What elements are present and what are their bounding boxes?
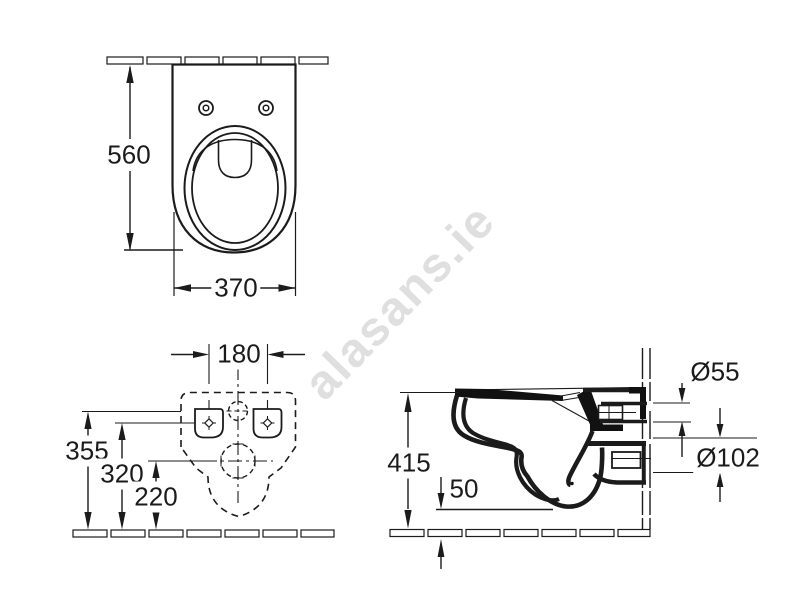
dim-label-outlet-diameter: Ø102 xyxy=(693,443,763,474)
rim-top xyxy=(455,389,563,402)
dim-label-outlet-220: 220 xyxy=(131,482,180,513)
technical-drawing-page: alasans.ie xyxy=(0,0,800,600)
dimension-inlet-diameter-lines xyxy=(653,383,691,457)
trap-curve xyxy=(568,431,592,485)
outlet-opening xyxy=(612,452,641,468)
wall-hatch-right xyxy=(643,348,651,529)
drawing-linework xyxy=(0,0,800,600)
seat-outer-ring xyxy=(185,126,286,250)
dim-label-offset-50: 50 xyxy=(447,474,482,505)
dim-label-height-560: 560 xyxy=(104,140,153,171)
wall-hatch-bottom-left xyxy=(73,530,334,537)
dim-label-inlet-diameter: Ø55 xyxy=(687,357,742,388)
floor-reference-arrow xyxy=(438,539,445,569)
top-view xyxy=(107,57,328,296)
wc-side-profile xyxy=(453,387,651,507)
rear-installation-view xyxy=(73,341,334,537)
dim-label-spacing-180: 180 xyxy=(214,339,263,370)
wall-hatch-top xyxy=(107,57,328,64)
wall-hatch-bottom-right xyxy=(390,530,650,537)
inlet-lower-bar xyxy=(590,425,623,432)
dim-label-rim-415: 415 xyxy=(384,448,433,479)
dim-label-width-370: 370 xyxy=(211,273,260,304)
